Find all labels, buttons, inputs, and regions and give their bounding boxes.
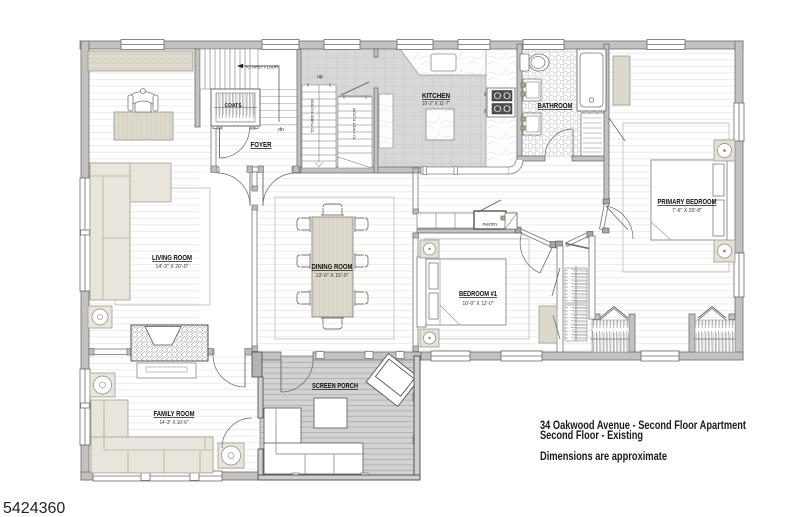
svg-text:up: up (317, 74, 323, 80)
svg-text:13'-0" X 15'-0": 13'-0" X 15'-0" (316, 273, 349, 279)
svg-text:LIVING ROOM: LIVING ROOM (152, 255, 192, 262)
svg-text:Second Floor - Existing: Second Floor - Existing (540, 428, 643, 442)
svg-text:DINING ROOM: DINING ROOM (312, 264, 353, 271)
svg-text:10'-2" X 11'-7": 10'-2" X 11'-7" (422, 101, 450, 107)
svg-text:Dimensions are approximate: Dimensions are approximate (540, 449, 667, 463)
svg-text:TO FIRST FLOOR: TO FIRST FLOOR (352, 108, 357, 140)
svg-text:KITCHEN: KITCHEN (422, 91, 450, 100)
svg-text:10'-0" X 12'-0": 10'-0" X 12'-0" (463, 301, 494, 307)
svg-text:BEDROOM #1: BEDROOM #1 (459, 291, 497, 298)
svg-text:SCREEN PORCH: SCREEN PORCH (312, 383, 358, 390)
svg-text:PRIMARY BEDROOM: PRIMARY BEDROOM (658, 199, 717, 206)
svg-text:TO FIRST FLOOR: TO FIRST FLOOR (245, 65, 278, 70)
svg-text:dn: dn (278, 127, 284, 133)
svg-text:COATS: COATS (225, 103, 242, 109)
svg-text:14'-3" X 20'-0": 14'-3" X 20'-0" (156, 264, 189, 270)
svg-text:BATHROOM: BATHROOM (538, 103, 573, 110)
svg-text:5424360: 5424360 (3, 500, 65, 517)
svg-text:FOYER: FOYER (251, 140, 272, 149)
svg-text:PANTRY: PANTRY (483, 222, 498, 227)
svg-text:7'-6" X 20'-8": 7'-6" X 20'-8" (672, 208, 702, 214)
svg-text:TO THIRD FLOOR: TO THIRD FLOOR (310, 99, 315, 133)
svg-text:14'-3" X 10'-6": 14'-3" X 10'-6" (160, 420, 189, 426)
svg-text:FAMILY ROOM: FAMILY ROOM (154, 411, 195, 418)
